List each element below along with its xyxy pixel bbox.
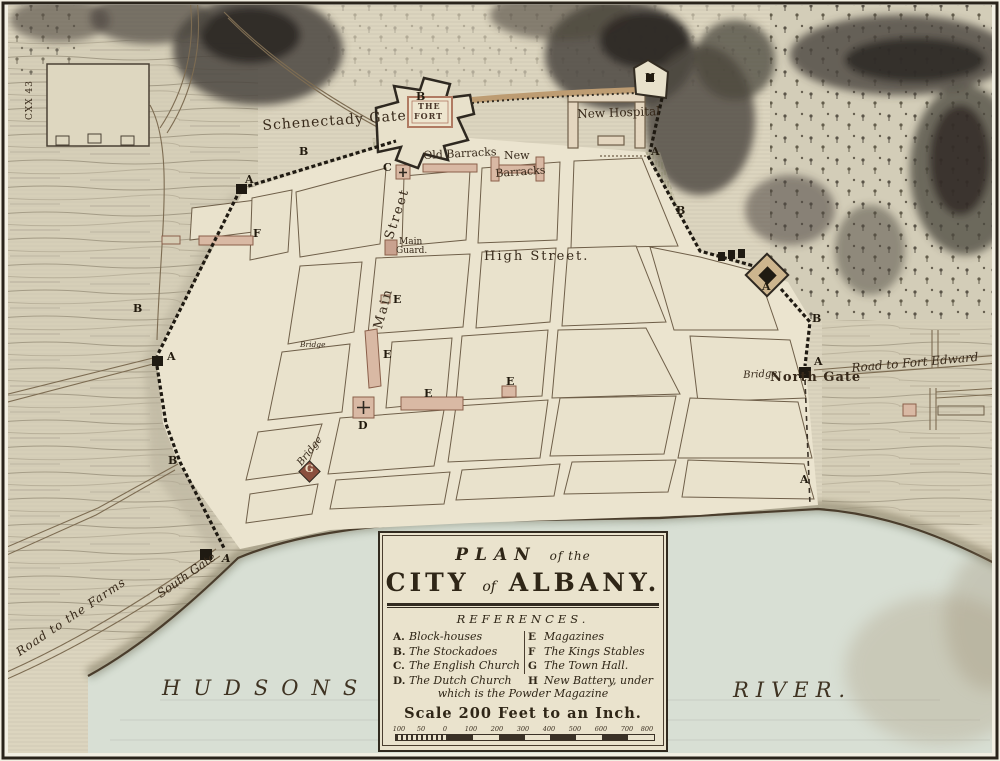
scale-bar: 100 50 0 100 200 300 400 500 600 700 800… — [395, 725, 651, 742]
marker-town-hall: G — [305, 465, 314, 475]
reference-item: D.The Dutch Church — [393, 674, 520, 689]
reference-item: GThe Town Hall. — [528, 659, 655, 674]
reference-item: C.The English Church — [393, 659, 520, 674]
scale-tick: 0 — [443, 725, 447, 733]
ref-label: Block-houses — [409, 630, 482, 643]
title-cartouche: PLAN of the CITY of ALBANY. REFERENCES. … — [378, 531, 668, 752]
ref-key: B. — [393, 645, 409, 660]
marker-english-church: C — [383, 162, 392, 173]
ref-label: The Kings Stables — [544, 645, 645, 658]
marker-south-gate-blockhouse: A — [222, 553, 231, 564]
references-footnote: which is the Powder Magazine — [383, 687, 663, 700]
label-north-gate: North Gate — [770, 371, 861, 384]
ref-label: Magazines — [544, 630, 604, 643]
label-new-barracks-line2: Barracks — [495, 164, 546, 178]
cartouche-rule — [387, 603, 659, 608]
references-columns: A.Block-houses B.The Stockadoes C.The En… — [393, 630, 655, 688]
title-of: of — [482, 579, 496, 595]
title-plan: PLAN — [455, 545, 536, 565]
reference-item: B.The Stockadoes — [393, 645, 520, 660]
marker-nw-stockade: B — [299, 146, 308, 157]
reference-item: FThe Kings Stables — [528, 645, 655, 660]
scale-tick: 700 — [621, 725, 633, 733]
marker-kings-stables: F — [253, 228, 261, 239]
scale-tick: 200 — [491, 725, 503, 733]
marker-north-gate-blockhouse: A — [814, 356, 823, 367]
ref-key: A. — [393, 630, 409, 645]
label-the-fort-line2: FORT — [414, 112, 443, 120]
ref-key: E — [528, 630, 544, 645]
ref-key: C. — [393, 659, 409, 674]
reference-item: A.Block-houses — [393, 630, 520, 645]
albany-map: Schenectady Gate THE FORT New Hospital O… — [0, 0, 1000, 761]
label-bridge-small: Bridge — [300, 341, 326, 349]
reference-item: EMagazines — [528, 630, 655, 645]
marker-dutch-church: D — [358, 420, 368, 431]
scale-tick: 500 — [569, 725, 581, 733]
label-hudsons: HUDSONS — [162, 678, 370, 699]
marker-west-stockade: B — [133, 303, 142, 314]
references-heading: REFERENCES. — [383, 612, 663, 626]
marker-west-blockhouse: A — [167, 351, 176, 362]
northwest-enclosure — [47, 64, 149, 146]
marker-east-stockade-mid: B — [676, 205, 685, 216]
marker-southwest-stockade: B — [168, 455, 177, 466]
scale-bar-segments — [395, 734, 655, 741]
references-left-column: A.Block-houses B.The Stockadoes C.The En… — [393, 630, 520, 688]
scale-label: Scale 200 Feet to an Inch. — [383, 705, 663, 722]
marker-nw-blockhouse: A — [245, 174, 254, 185]
ref-label: The Town Hall. — [544, 659, 628, 672]
label-river: RIVER. — [733, 680, 852, 701]
marker-east-redoubt: A — [762, 281, 771, 292]
scale-tick: 50 — [417, 725, 425, 733]
marker-northeast-stockade: B — [812, 313, 821, 324]
cartouche-inner-border: PLAN of the CITY of ALBANY. REFERENCES. … — [382, 535, 664, 746]
scale-tick: 300 — [517, 725, 529, 733]
ref-key: F — [528, 645, 544, 660]
reference-item: HNew Battery, under — [528, 674, 655, 689]
label-high-street: High Street. — [484, 250, 589, 263]
title-albany: ALBANY. — [509, 568, 661, 597]
ref-key: D. — [393, 674, 409, 689]
marker-magazine-long: E — [424, 388, 432, 399]
ref-label: The Dutch Church — [409, 674, 512, 687]
scale-tick: 100 — [393, 725, 405, 733]
ref-label: The English Church — [409, 659, 520, 672]
label-new-barracks-line1: New — [504, 150, 530, 161]
marker-magazine-east: E — [506, 376, 514, 387]
scale-tick: 100 — [465, 725, 477, 733]
scale-tick: 400 — [543, 725, 555, 733]
map-title-line1: PLAN of the — [383, 545, 663, 565]
map-title-line2: CITY of ALBANY. — [383, 568, 663, 597]
scale-bar-comb — [396, 735, 447, 740]
label-the-fort-line1: THE — [418, 102, 441, 110]
marker-east-stockade-upper: A — [651, 146, 660, 157]
title-of-the: of the — [550, 549, 591, 563]
marker-magazine-vertical: E — [383, 349, 391, 360]
references-right-column: EMagazines FThe Kings Stables GThe Town … — [520, 630, 655, 688]
label-new-hospital: New Hospital — [577, 105, 660, 120]
marker-magazine-small: E — [393, 294, 401, 305]
marker-fort-curtain: B — [416, 91, 425, 102]
title-city: CITY — [386, 568, 470, 597]
ref-key: H — [528, 674, 544, 689]
marker-riverside-blockhouse: A — [800, 474, 809, 485]
ref-label: The Stockadoes — [409, 645, 497, 658]
ref-key: G — [528, 659, 544, 674]
scale-tick: 600 — [595, 725, 607, 733]
label-main-guard-line2: Guard. — [396, 247, 427, 256]
marker-new-battery: H — [645, 72, 655, 83]
label-plot-number: CXX 43 — [26, 80, 35, 120]
ref-label: New Battery, under — [544, 674, 653, 687]
